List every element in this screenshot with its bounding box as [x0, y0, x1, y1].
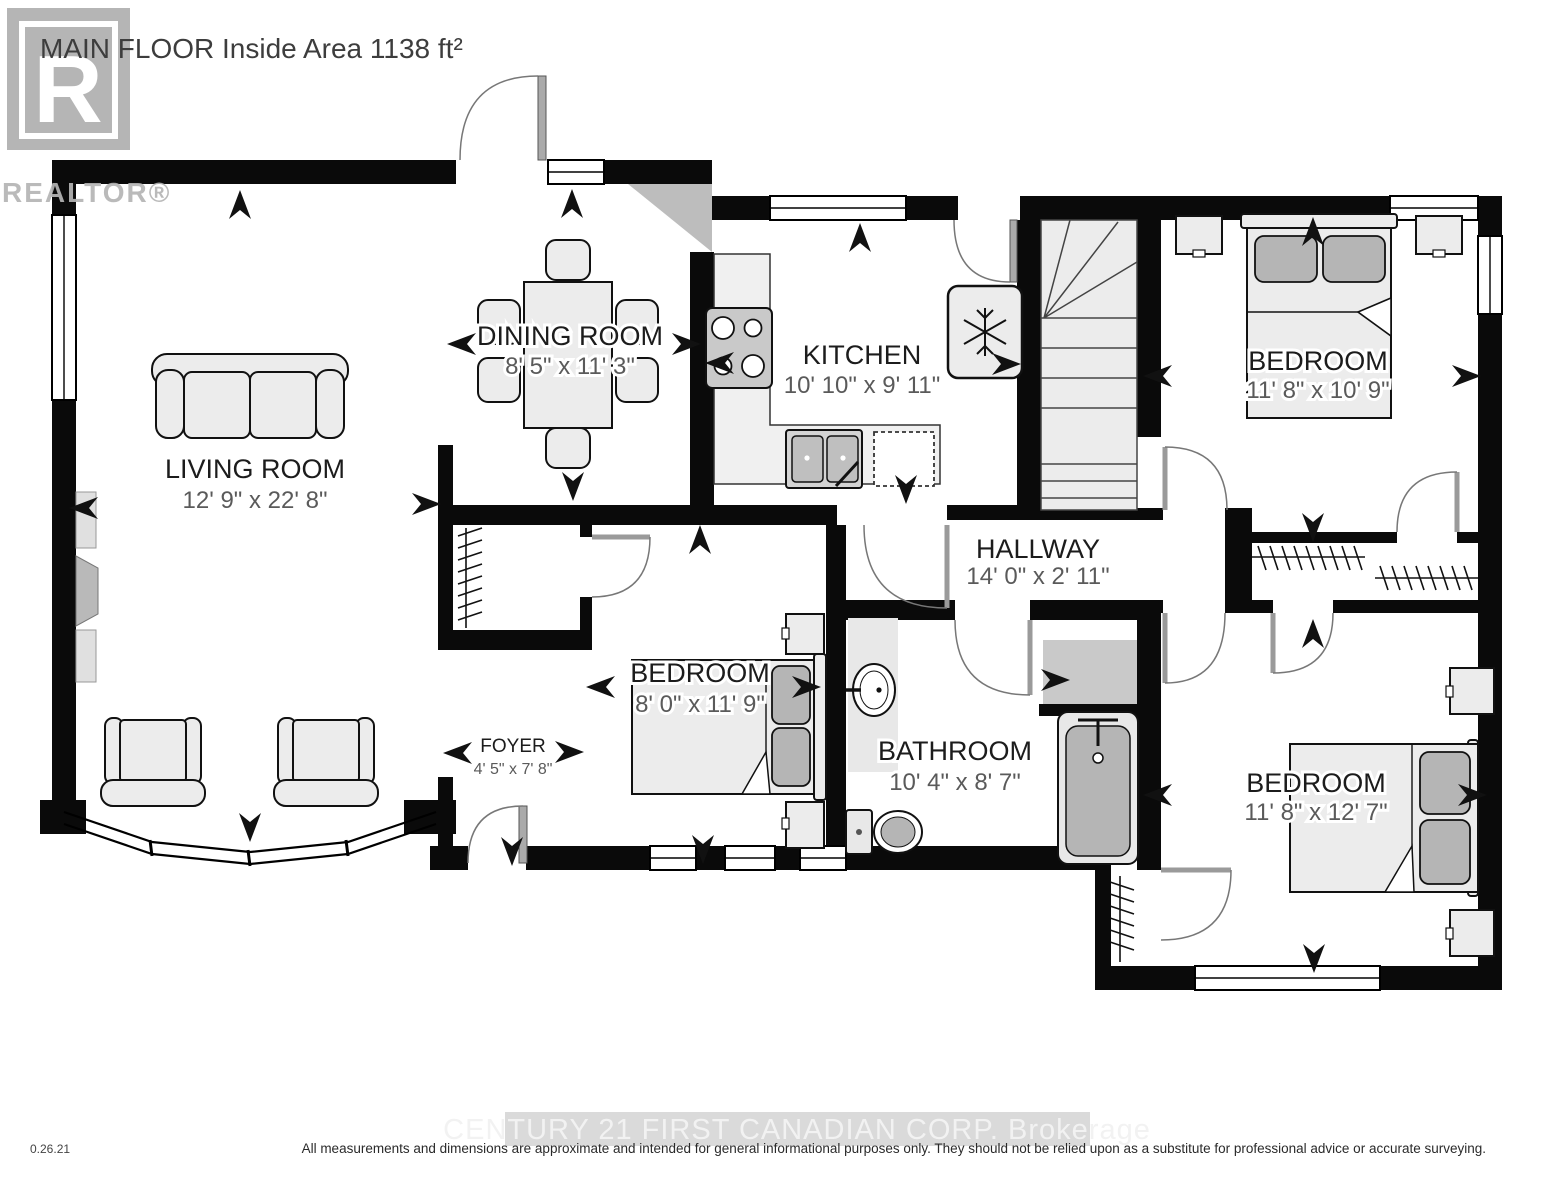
stair-niche — [1043, 640, 1137, 704]
room-dims-bathroom: 10' 4" x 8' 7" — [889, 769, 1021, 796]
room-dims-foyer: 4' 5" x 7' 8" — [474, 761, 553, 778]
linen-closet-door — [1161, 870, 1231, 940]
kitchen-sink — [786, 430, 862, 488]
bathtub — [1058, 712, 1138, 864]
floor-plan-svg: R — [0, 0, 1553, 1200]
window-bedroom-mid-2 — [725, 846, 775, 870]
window-bedroom-bottom — [1195, 966, 1380, 990]
fireplace — [76, 492, 98, 682]
closet-b-rod — [1375, 566, 1478, 590]
stove — [706, 308, 772, 388]
toilet — [846, 810, 922, 854]
room-dims-living-room: 12' 9" x 22' 8" — [183, 487, 328, 514]
bathroom-door — [955, 620, 1030, 695]
room-label-bedroom-mid: BEDROOM — [630, 658, 770, 688]
nightstand — [1416, 216, 1462, 257]
room-label-dining-room: DINING ROOM — [477, 321, 663, 351]
back-door — [954, 220, 1017, 282]
nightstand — [782, 802, 824, 848]
nightstand — [1446, 910, 1494, 956]
realtor-logo: R — [7, 8, 130, 150]
window-bedroom-mid-1 — [650, 846, 696, 870]
room-label-living-room: LIVING ROOM — [165, 454, 345, 484]
window-sidelight — [548, 160, 604, 184]
window-bedroom-right — [1478, 236, 1502, 314]
angled-wall — [628, 184, 712, 252]
realtor-wordmark: REALTOR® — [2, 177, 171, 208]
room-label-foyer: FOYER — [480, 736, 545, 757]
sofa — [152, 354, 348, 438]
bedroom-bottom-door-a — [1165, 613, 1225, 683]
room-label-bathroom: BATHROOM — [878, 736, 1032, 766]
room-dims-bedroom-top: 11' 8" x 10' 9" — [1246, 377, 1389, 404]
room-label-hallway: HALLWAY — [976, 534, 1100, 564]
armchair — [274, 718, 378, 806]
nightstand — [1176, 216, 1222, 257]
foyer-exterior-door — [468, 806, 527, 863]
footer: CENTURY 21 FIRST CANADIAN CORP. Brokerag… — [30, 1112, 1486, 1156]
stairs — [1041, 220, 1137, 510]
floor-plan-page: R — [0, 0, 1553, 1200]
room-dims-bedroom-bottom: 11' 8" x 12' 7" — [1244, 799, 1387, 826]
page-title: MAIN FLOOR Inside Area 1138 ft² — [40, 33, 463, 64]
room-label-bedroom-top: BEDROOM — [1248, 346, 1388, 376]
front-door — [460, 76, 546, 160]
dishwasher — [874, 432, 934, 486]
window-living-left — [52, 215, 76, 400]
room-label-bedroom-bottom: BEDROOM — [1246, 768, 1386, 798]
bedroom-top-door — [1165, 447, 1227, 510]
closet-a-rod — [1252, 546, 1365, 570]
window-bedroom-mid-3 — [800, 846, 846, 870]
window-kitchen — [770, 196, 906, 220]
foyer-closet-rod — [458, 528, 482, 628]
linen-closet-rod — [1110, 876, 1134, 962]
bedroom-bottom-door-b — [1273, 613, 1333, 673]
room-dims-hallway: 14' 0" x 2' 11" — [966, 563, 1109, 590]
nightstand — [1446, 668, 1494, 714]
kitchen-hall-door — [864, 525, 947, 608]
room-dims-dining-room: 8' 5" x 11' 3" — [505, 353, 635, 380]
bedroom-mid-door — [592, 537, 650, 597]
armchair — [101, 718, 205, 806]
disclaimer-text: All measurements and dimensions are appr… — [302, 1141, 1486, 1156]
nightstand — [782, 614, 824, 654]
version-stamp: 0.26.21 — [30, 1142, 70, 1156]
room-label-kitchen: KITCHEN — [803, 340, 922, 370]
room-dims-kitchen: 10' 10" x 9' 11" — [784, 372, 941, 399]
room-dims-bedroom-mid: 8' 0" x 11' 9" — [635, 691, 765, 718]
closet-b-door — [1397, 472, 1457, 532]
